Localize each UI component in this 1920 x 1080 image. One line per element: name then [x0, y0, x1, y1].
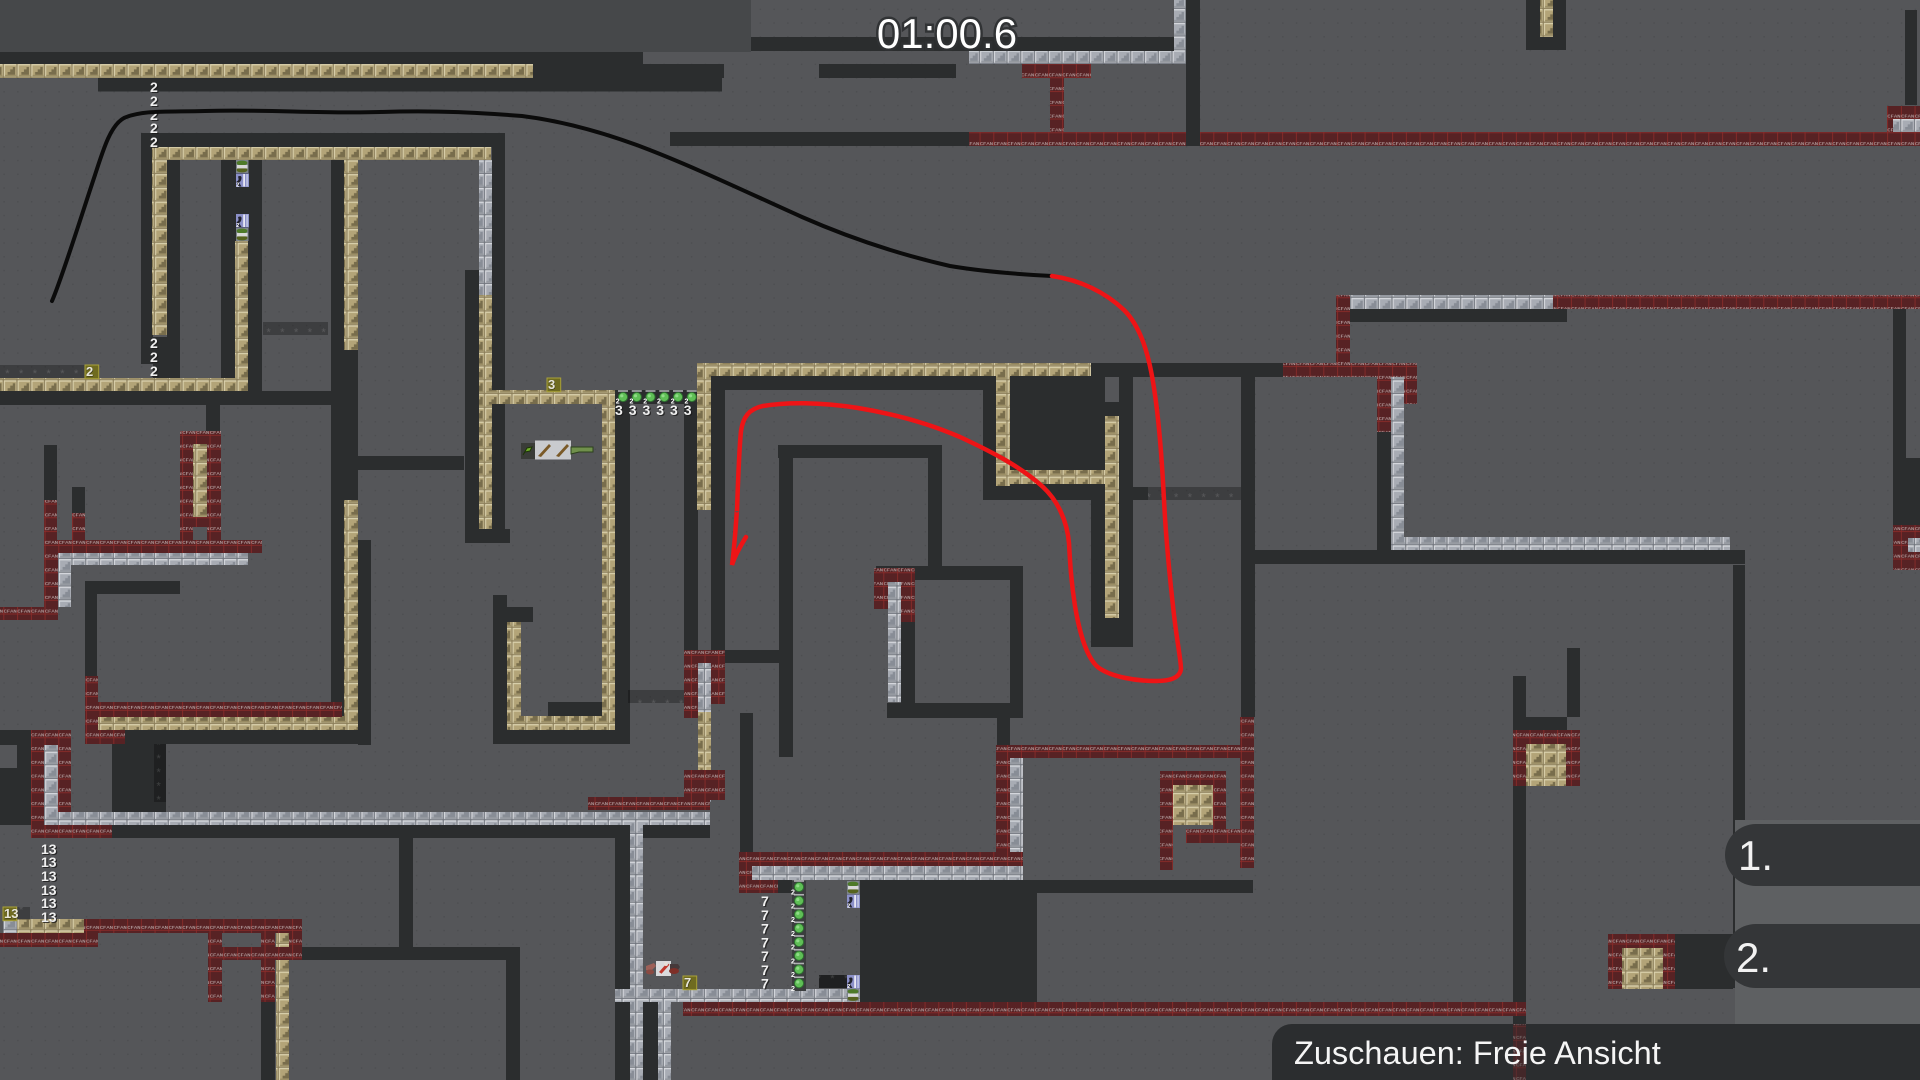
- svg-text:7: 7: [684, 975, 691, 990]
- svg-text:2: 2: [657, 399, 661, 406]
- svg-text:2: 2: [150, 363, 158, 379]
- svg-text:3: 3: [548, 377, 555, 392]
- svg-text:13: 13: [41, 909, 57, 925]
- svg-text:2: 2: [847, 904, 850, 910]
- svg-text:2: 2: [791, 986, 795, 993]
- svg-text:1.: 1.: [1738, 832, 1773, 879]
- svg-text:2: 2: [616, 399, 620, 406]
- svg-text:2: 2: [236, 183, 239, 189]
- svg-text:01:00.6: 01:00.6: [877, 10, 1017, 57]
- svg-text:7: 7: [761, 976, 769, 992]
- svg-text:2: 2: [150, 134, 158, 150]
- svg-text:2: 2: [643, 399, 647, 406]
- svg-text:2: 2: [671, 399, 675, 406]
- svg-text:13: 13: [4, 906, 18, 921]
- svg-text:2: 2: [86, 364, 93, 379]
- svg-text:2.: 2.: [1736, 934, 1771, 981]
- svg-text:2: 2: [684, 399, 688, 406]
- svg-text:2: 2: [629, 399, 633, 406]
- svg-text:Zuschauen: Freie Ansicht: Zuschauen: Freie Ansicht: [1294, 1035, 1661, 1071]
